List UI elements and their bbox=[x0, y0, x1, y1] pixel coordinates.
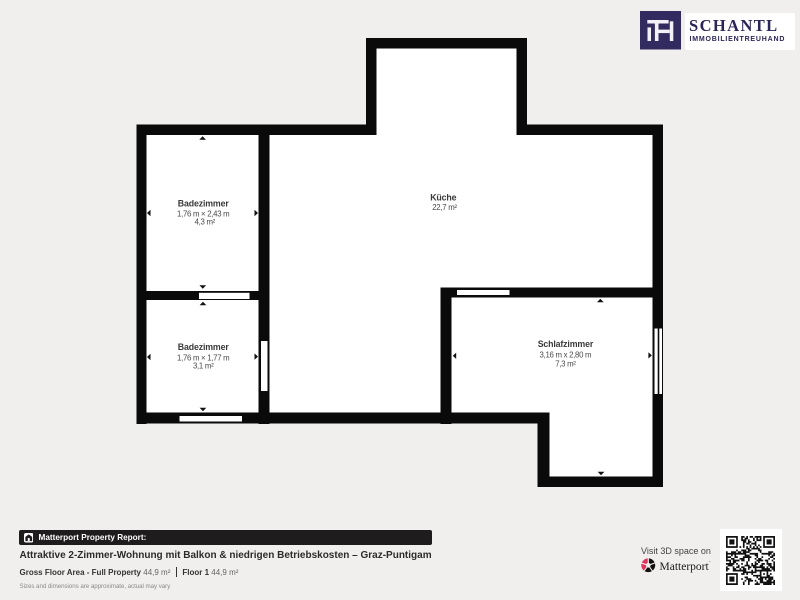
svg-text:22,7 m²: 22,7 m² bbox=[432, 203, 457, 212]
svg-text:Küche: Küche bbox=[430, 193, 456, 203]
svg-text:Schlafzimmer: Schlafzimmer bbox=[538, 339, 594, 349]
svg-text:4,3 m²: 4,3 m² bbox=[195, 217, 216, 226]
svg-text:7,3 m²: 7,3 m² bbox=[555, 360, 576, 369]
svg-text:3,1 m²: 3,1 m² bbox=[193, 362, 214, 371]
svg-text:Badezimmer: Badezimmer bbox=[178, 342, 230, 352]
svg-text:3,16 m x 2,80 m: 3,16 m x 2,80 m bbox=[540, 351, 592, 360]
svg-text:Badezimmer: Badezimmer bbox=[178, 198, 230, 208]
